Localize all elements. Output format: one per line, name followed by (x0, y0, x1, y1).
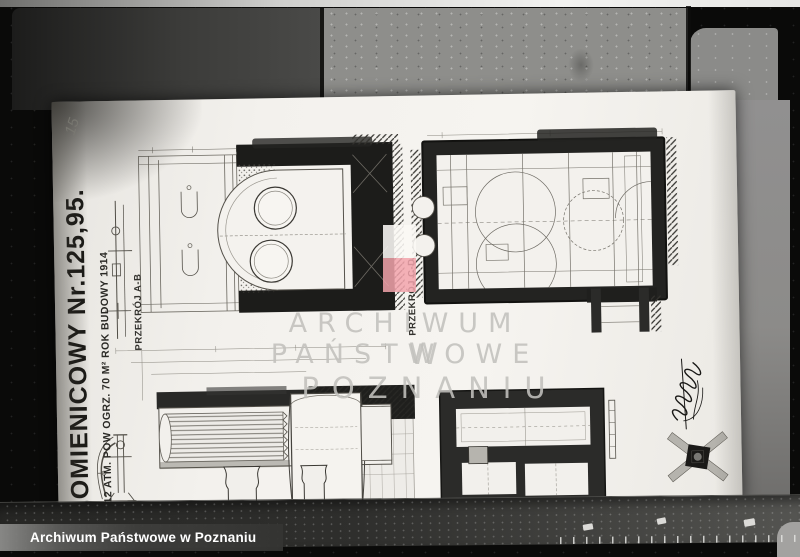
section-ab-drawing (102, 134, 405, 339)
archive-caption-bar: Archiwum Państwowe w Poznaniu (0, 524, 283, 551)
watermark-badge-white-square (383, 225, 416, 258)
table-seam-left (320, 8, 324, 109)
archival-photo-stage: ŁOMIENICOWY Nr.125,95. B. 12 ATM. POW OG… (0, 0, 800, 557)
blueprint-sheet: ŁOMIENICOWY Nr.125,95. B. 12 ATM. POW OG… (51, 90, 742, 514)
drawing-title: ŁOMIENICOWY Nr.125,95. (61, 188, 96, 516)
ruler-tick-marks (560, 535, 798, 544)
signature (654, 357, 716, 430)
surface-stain (568, 48, 594, 82)
boiler-plan-drawing (95, 343, 416, 510)
table-surface-left (12, 8, 324, 110)
boiler-technical-drawing (51, 90, 742, 514)
watermark-badge-pink-square (383, 258, 416, 292)
seal-stamp (667, 432, 728, 482)
section-cd-drawing (410, 127, 680, 336)
foundation-plan-drawing (440, 388, 617, 501)
photo-top-light-strip (0, 0, 800, 7)
table-surface-right-strip (734, 100, 790, 512)
section-ab-label: PRZEKRÓJ A-B (132, 274, 144, 351)
